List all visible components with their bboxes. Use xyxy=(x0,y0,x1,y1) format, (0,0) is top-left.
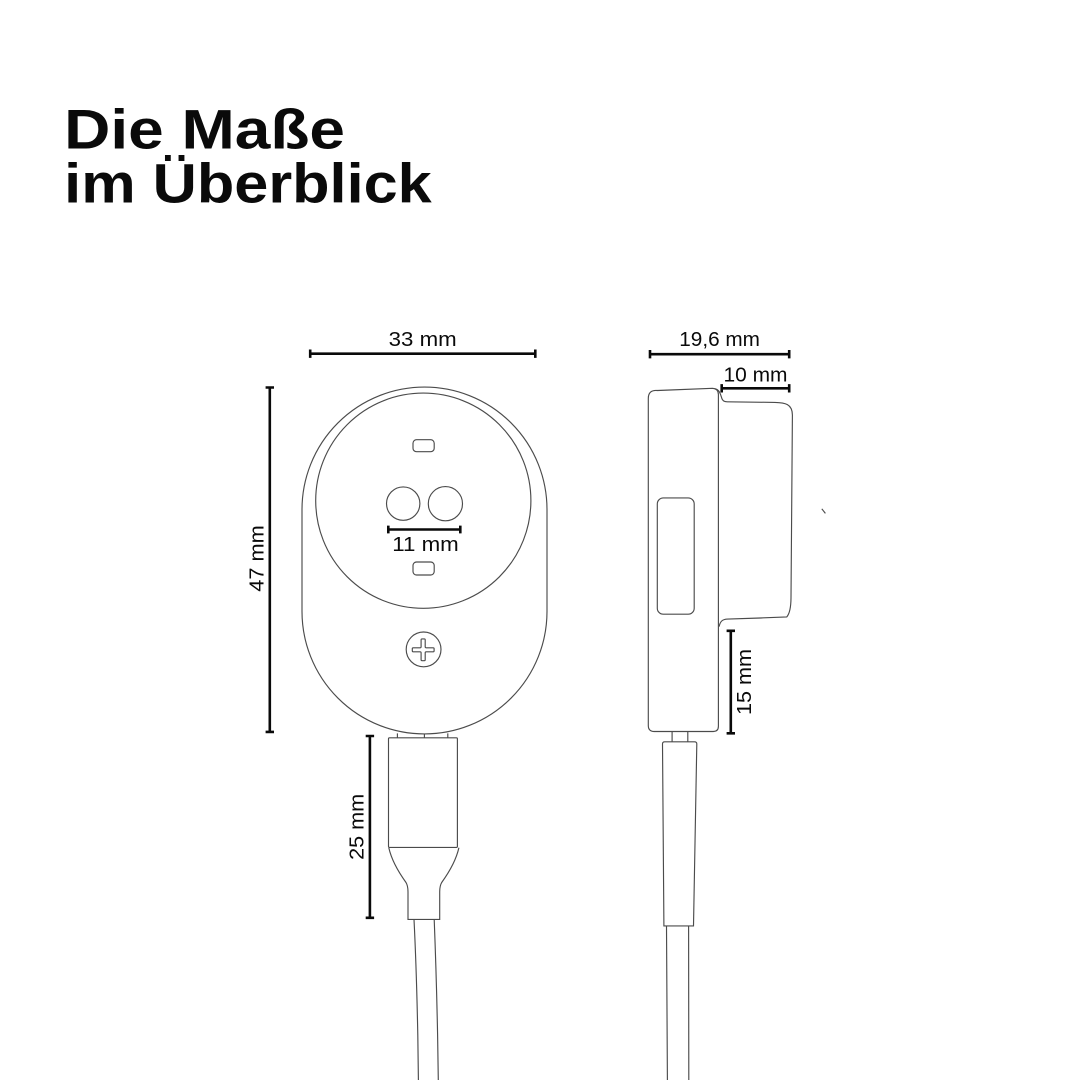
svg-text:10 mm: 10 mm xyxy=(724,365,788,387)
svg-text:Die Maße: Die Maße xyxy=(64,98,345,160)
svg-text:47 mm: 47 mm xyxy=(247,525,269,592)
svg-text:33 mm: 33 mm xyxy=(389,329,457,351)
svg-text:15 mm: 15 mm xyxy=(734,649,756,715)
svg-text:im Überblick: im Überblick xyxy=(64,152,432,214)
svg-text:11 mm: 11 mm xyxy=(392,534,459,556)
svg-text:19,6 mm: 19,6 mm xyxy=(679,329,760,351)
svg-text:25 mm: 25 mm xyxy=(346,794,368,860)
